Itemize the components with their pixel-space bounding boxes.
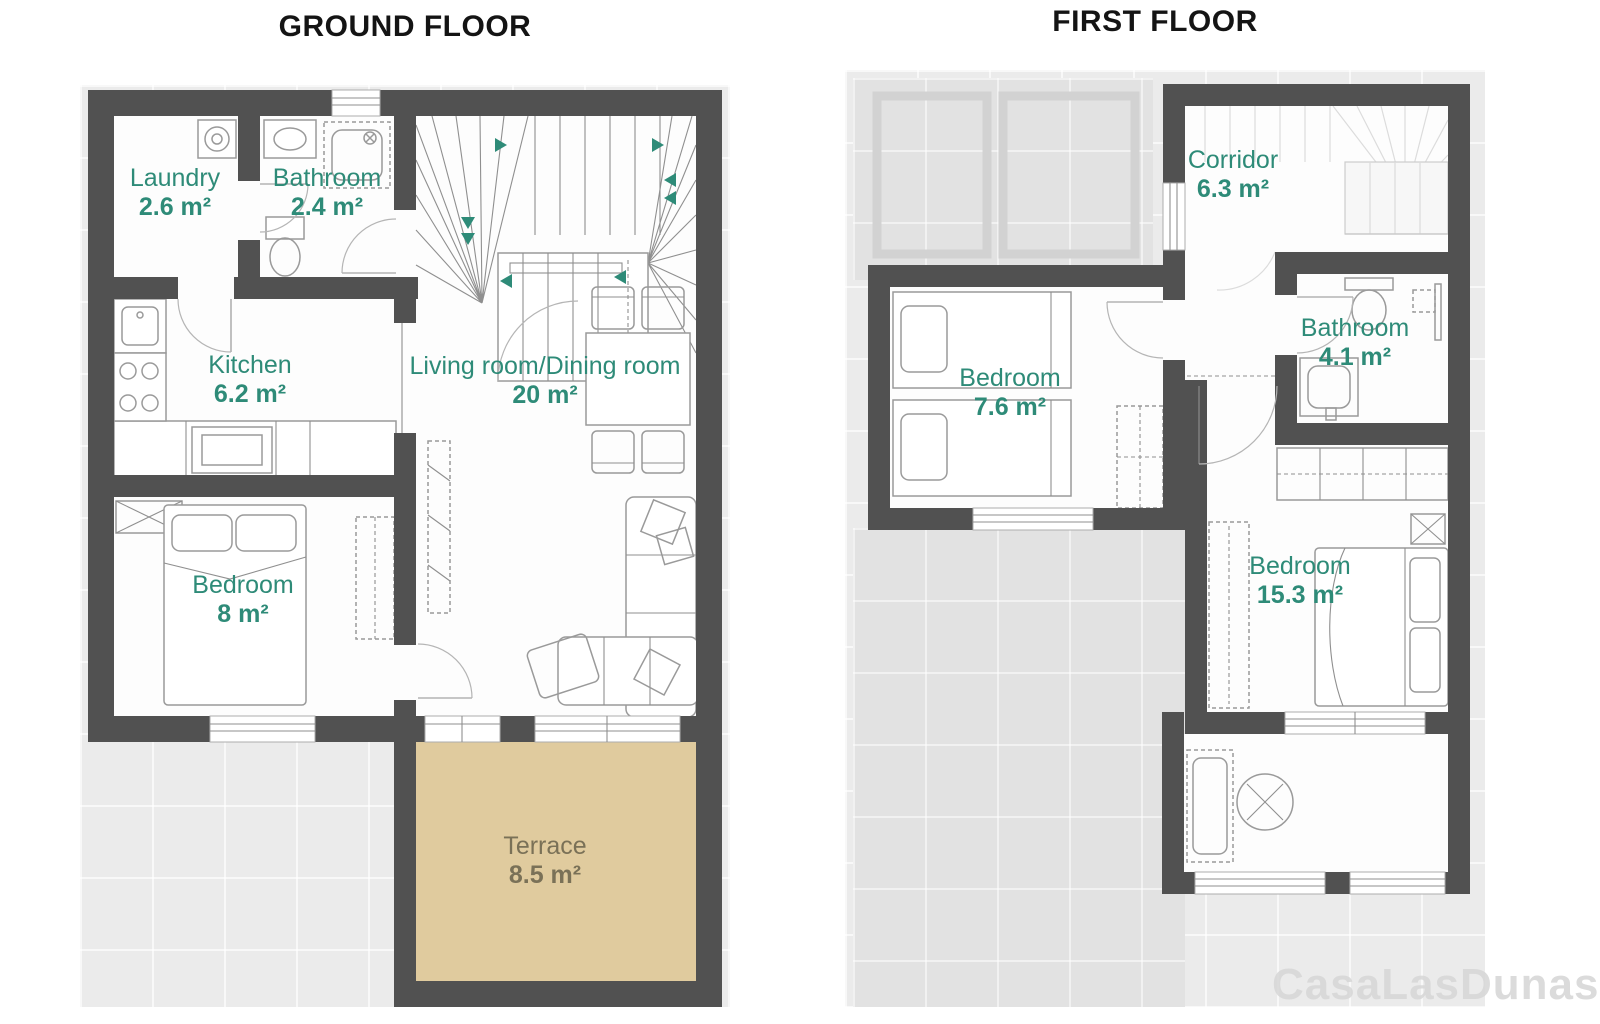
label-laundry: Laundry 2.6 m² — [95, 164, 255, 221]
label-living-room: Living room/Dining room 20 m² — [405, 352, 685, 409]
room-name: Bedroom — [930, 364, 1090, 393]
label-terrace: Terrace 8.5 m² — [465, 832, 625, 889]
label-kitchen: Kitchen 6.2 m² — [170, 351, 330, 408]
room-area: 8.5 m² — [465, 861, 625, 890]
label-corridor: Corridor 6.3 m² — [1153, 146, 1313, 203]
first-floor-drawing — [845, 70, 1485, 1007]
first-floor-plan: Corridor 6.3 m² Bedroom 7.6 m² Bathroom … — [845, 70, 1485, 1007]
room-area: 6.3 m² — [1153, 175, 1313, 204]
watermark: CasaLasDunas — [1272, 960, 1599, 1010]
room-area: 2.4 m² — [247, 193, 407, 222]
floorplan-page: GROUND FLOOR FIRST FLOOR — [0, 0, 1600, 1024]
stove — [114, 353, 166, 421]
room-name: Kitchen — [170, 351, 330, 380]
first-floor-title: FIRST FLOOR — [845, 5, 1465, 39]
room-name: Bedroom — [163, 571, 323, 600]
room-area: 2.6 m² — [95, 193, 255, 222]
room-name: Corridor — [1153, 146, 1313, 175]
balcony-railing — [1350, 872, 1445, 894]
ground-floor-plan: Laundry 2.6 m² Bathroom 2.4 m² Kitchen 6… — [80, 85, 730, 1007]
room-name: Terrace — [465, 832, 625, 861]
balcony-floor — [1184, 734, 1448, 872]
room-area: 20 m² — [405, 381, 685, 410]
ground-floor-drawing — [80, 85, 730, 1007]
room-name: Living room/Dining room — [405, 352, 685, 381]
room-name: Bathroom — [1275, 314, 1435, 343]
label-ground-bedroom: Bedroom 8 m² — [163, 571, 323, 628]
balcony-railing — [1195, 872, 1325, 894]
label-bedroom-153: Bedroom 15.3 m² — [1220, 552, 1380, 609]
label-ground-bathroom: Bathroom 2.4 m² — [247, 164, 407, 221]
washing-machine — [198, 120, 236, 158]
room-area: 4.1 m² — [1275, 343, 1435, 372]
label-first-bathroom: Bathroom 4.1 m² — [1275, 314, 1435, 371]
room-name: Bathroom — [247, 164, 407, 193]
room-area: 6.2 m² — [170, 380, 330, 409]
room-name: Laundry — [95, 164, 255, 193]
room-name: Bedroom — [1220, 552, 1380, 581]
roof-wall-outlines — [877, 96, 1135, 254]
ground-floor-title: GROUND FLOOR — [80, 10, 730, 44]
room-area: 15.3 m² — [1220, 581, 1380, 610]
label-bedroom-76: Bedroom 7.6 m² — [930, 364, 1090, 421]
room-area: 7.6 m² — [930, 393, 1090, 422]
room-area: 8 m² — [163, 600, 323, 629]
